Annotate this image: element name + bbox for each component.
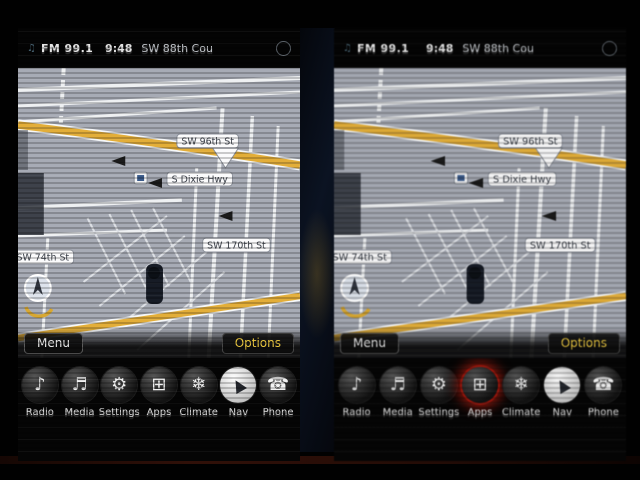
map-view[interactable]: SW 96th St S Dixie Hwy SW 170th St SW 74…	[334, 68, 626, 358]
map-label-sw170: SW 170th St	[530, 241, 591, 252]
screen-gap-bezel	[299, 28, 335, 452]
vehicle-position-marker	[467, 264, 484, 304]
dock-item-nav-label: Nav	[229, 407, 249, 418]
audio-source-icon: ♫	[343, 43, 352, 54]
dock-item-radio-label: Radio	[26, 407, 54, 418]
map-label-dixie: S Dixie Hwy	[493, 175, 552, 186]
app-dock: ♪ Radio ♬ Media ⚙ Settings ⊞ Apps ❄ Clim…	[18, 358, 300, 461]
dock-item-climate[interactable]: ❄ Climate	[502, 367, 540, 418]
status-bar: ♫ FM 99.1 9:48 SW 88th Cou	[18, 28, 300, 68]
dock-item-settings-label: Settings	[99, 407, 140, 418]
dock-item-radio[interactable]: ♪ Radio	[21, 367, 59, 418]
dock-item-media-label: Media	[383, 407, 413, 418]
settings-icon: ⚙	[431, 376, 447, 394]
nav-icon: ▲	[229, 375, 248, 395]
climate-icon: ❄	[514, 376, 529, 394]
map-label-sw170: SW 170th St	[207, 240, 266, 251]
infotainment-screen: ♫ FM 99.1 9:48 SW 88th Cou	[334, 28, 626, 452]
current-street-label: SW 88th Cou	[141, 42, 213, 55]
poi-icon	[134, 172, 147, 184]
dock-item-climate[interactable]: ❄ Climate	[180, 367, 218, 418]
map-label-sw74: SW 74th St	[18, 252, 69, 263]
clock: 9:48	[426, 42, 453, 55]
map-canvas: SW 96th St S Dixie Hwy SW 170th St SW 74…	[334, 68, 626, 358]
options-button[interactable]: Options	[548, 333, 620, 354]
dock-item-nav[interactable]: ▲ Nav	[219, 367, 257, 418]
infotainment-screen: ♫ FM 99.1 9:48 SW 88th Cou	[18, 28, 300, 452]
poi-icon	[454, 172, 467, 184]
map-toolbar: Menu Options	[334, 328, 626, 358]
map-toolbar: Menu Options	[18, 328, 300, 358]
media-icon: ♬	[71, 376, 87, 394]
dock-item-radio[interactable]: ♪ Radio	[338, 367, 376, 418]
media-icon: ♬	[390, 376, 406, 394]
climate-icon: ❄	[191, 376, 206, 394]
map-label-sw74: SW 74th St	[334, 253, 387, 264]
dock-item-nav[interactable]: ▲ Nav	[543, 367, 581, 418]
audio-source-label: FM 99.1	[41, 42, 93, 55]
dock-item-media[interactable]: ♬ Media	[379, 367, 417, 418]
dock-item-settings[interactable]: ⚙ Settings	[420, 367, 458, 418]
phone-icon: ☎	[592, 376, 614, 394]
map-view[interactable]: SW 96th St S Dixie Hwy SW 170th St SW 74…	[18, 68, 300, 358]
apps-icon: ⊞	[151, 376, 166, 394]
radio-icon: ♪	[34, 376, 46, 394]
map-label-sw96: SW 96th St	[181, 136, 234, 147]
current-street-label: SW 88th Cou	[462, 42, 534, 55]
dock-item-phone-label: Phone	[263, 407, 294, 418]
dock-item-media-label: Media	[65, 407, 95, 418]
dock-item-nav-label: Nav	[553, 407, 573, 418]
map-label-sw96: SW 96th St	[503, 137, 558, 148]
dock-item-apps-label: Apps	[468, 407, 493, 418]
temp-indicator-icon	[276, 41, 291, 56]
dock-item-apps[interactable]: ⊞ Apps	[461, 367, 499, 418]
radio-icon: ♪	[351, 376, 363, 394]
dock-item-media[interactable]: ♬ Media	[61, 367, 99, 418]
dock-item-apps-label: Apps	[147, 407, 172, 418]
settings-icon: ⚙	[111, 376, 127, 394]
dock-item-climate-label: Climate	[179, 407, 217, 418]
dock-item-phone[interactable]: ☎ Phone	[259, 367, 297, 418]
audio-source-icon: ♫	[27, 43, 36, 54]
nav-icon: ▲	[553, 375, 572, 395]
dock-item-apps[interactable]: ⊞ Apps	[140, 367, 178, 418]
apps-icon: ⊞	[472, 376, 487, 394]
map-label-dixie: S Dixie Hwy	[172, 174, 229, 185]
clock: 9:48	[105, 42, 132, 55]
app-dock: ♪ Radio ♬ Media ⚙ Settings ⊞ Apps ❄ Clim…	[334, 358, 626, 461]
dock-item-settings[interactable]: ⚙ Settings	[100, 367, 138, 418]
audio-source-label: FM 99.1	[357, 42, 409, 55]
dock-item-radio-label: Radio	[343, 407, 371, 418]
dock-item-settings-label: Settings	[418, 407, 459, 418]
dock-item-phone[interactable]: ☎ Phone	[584, 367, 622, 418]
dock-item-climate-label: Climate	[502, 407, 540, 418]
dock-item-phone-label: Phone	[588, 407, 619, 418]
phone-icon: ☎	[267, 376, 289, 394]
status-bar: ♫ FM 99.1 9:48 SW 88th Cou	[334, 28, 626, 68]
map-canvas: SW 96th St S Dixie Hwy SW 170th St SW 74…	[18, 68, 300, 358]
menu-button[interactable]: Menu	[340, 333, 399, 354]
menu-button[interactable]: Menu	[24, 333, 83, 354]
temp-indicator-icon	[602, 41, 617, 56]
options-button[interactable]: Options	[222, 333, 294, 354]
vehicle-position-marker	[146, 264, 163, 304]
dash-photo: ♫ FM 99.1 9:48 SW 88th Cou	[0, 0, 640, 480]
